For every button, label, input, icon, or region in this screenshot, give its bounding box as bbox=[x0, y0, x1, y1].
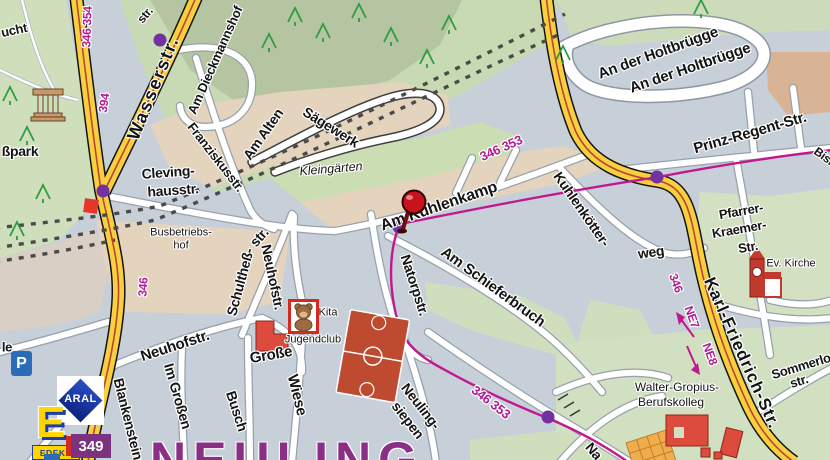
street-prinz-regent-str-label: Prinz-Regent-Str. bbox=[692, 110, 808, 157]
street-neuhofstr-h-label: Neuhofstr. bbox=[139, 328, 211, 364]
street-kuhlenkoetter-weg-label: weg bbox=[637, 243, 665, 261]
route-346-353-top-label: 346 353 bbox=[478, 133, 524, 163]
parking-icon: P bbox=[11, 351, 32, 376]
map-labels-layer: uchtstr.346 354394Wasserstr.ßparkAm Diec… bbox=[0, 0, 830, 460]
route-349-badge: 349 bbox=[71, 434, 111, 458]
area-kleingaerten-label: Kleingärten bbox=[299, 160, 363, 178]
street-am-alten-label: Am Alten bbox=[240, 106, 285, 162]
street-natorpstr-label: Natorpstr. bbox=[399, 253, 432, 317]
route-394-label: 394 bbox=[97, 93, 112, 114]
route-346-353-bottom-label: 346 353 bbox=[469, 383, 512, 421]
street-wiese-label: Wiese bbox=[285, 373, 310, 417]
poi-busbetriebshof-1-label: Busbetriebs- bbox=[150, 228, 212, 239]
street-bismarckstr-partial-label: Bismarckstr. bbox=[812, 145, 830, 195]
route-ne8-label: NE8 bbox=[701, 341, 720, 366]
poi-busbetriebshof-2-label: hof bbox=[173, 241, 188, 252]
street-str-partial-top-label: str. bbox=[135, 5, 155, 26]
street-am-dieckmannshof-label: Am Dieckmannshof bbox=[185, 4, 244, 116]
street-schulthess-label: Schultheß- bbox=[224, 247, 255, 318]
street-na-partial-label: Na bbox=[583, 440, 605, 460]
street-wasserstr-label: Wasserstr. bbox=[124, 33, 182, 142]
street-blankensteiner-label: Blankensteiner Str. bbox=[112, 377, 155, 460]
district-neuling-label: NEULING bbox=[150, 435, 424, 460]
street-saegewerk-label: Sägewerk bbox=[301, 104, 362, 149]
route-346-354-label: 346 354 bbox=[80, 6, 93, 48]
poi-kita-label: Kita bbox=[319, 308, 338, 319]
kindergarten-teddy-icon bbox=[288, 299, 319, 334]
poi-walter-gropius-1-label: Walter-Gropius- bbox=[635, 381, 719, 393]
edeka-letter: E bbox=[36, 398, 65, 448]
route-ne7-label: NE7 bbox=[683, 304, 702, 329]
poi-ev-kirche-label: Ev. Kirche bbox=[766, 259, 815, 270]
badge-fragment-blue bbox=[44, 454, 60, 460]
map-canvas[interactable]: uchtstr.346 354394Wasserstr.ßparkAm Diec… bbox=[0, 0, 830, 460]
street-kuhlenkoetter-label: Kuhlenkötter- bbox=[551, 169, 612, 248]
route-346-left-label: 346 bbox=[136, 277, 149, 297]
street-pfarrer-kraemer-3-label: Str. bbox=[737, 239, 759, 255]
street-sommerlo-partial-2-label: str. bbox=[788, 372, 809, 390]
route-346-kf-label: 346 bbox=[667, 272, 685, 294]
street-busch-label: Busch bbox=[224, 389, 250, 433]
teddy-bear-icon bbox=[291, 302, 316, 331]
street-im-grossen-label: Im Großen bbox=[162, 362, 194, 431]
poi-walter-gropius-2-label: Berufskolleg bbox=[638, 396, 704, 408]
street-neuhofstr-v-label: Neuhofstr. bbox=[259, 243, 286, 311]
street-am-kuhlenkamp-label: Am Kuhlenkamp bbox=[379, 180, 500, 235]
park-sspark-partial-label: ßpark bbox=[2, 144, 39, 158]
poi-jugendclub-label: Jugendclub bbox=[285, 335, 341, 346]
street-ucht-partial-label: ucht bbox=[0, 21, 28, 39]
street-clevinghausstr-1-label: Cleving- bbox=[141, 163, 195, 181]
street-am-schieferbruch-label: Am Schieferbruch bbox=[438, 244, 547, 329]
street-clevinghausstr-2-label: hausstr. bbox=[147, 181, 199, 199]
street-grosse-label: Große bbox=[249, 344, 294, 366]
